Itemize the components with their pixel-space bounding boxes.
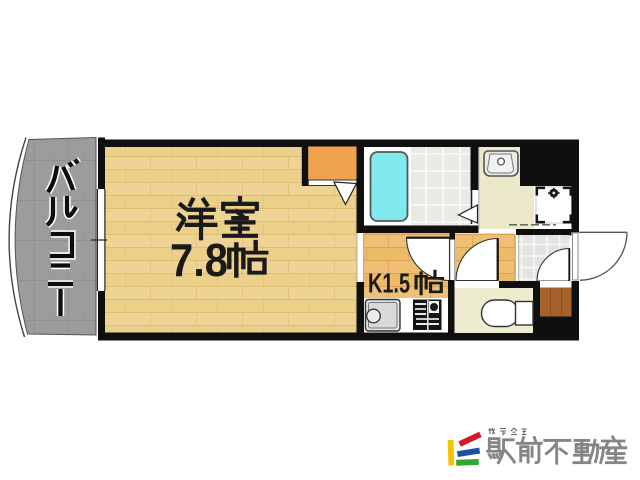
- svg-text:K1.5: K1.5: [368, 268, 410, 299]
- svg-text:7.8: 7.8: [170, 234, 228, 286]
